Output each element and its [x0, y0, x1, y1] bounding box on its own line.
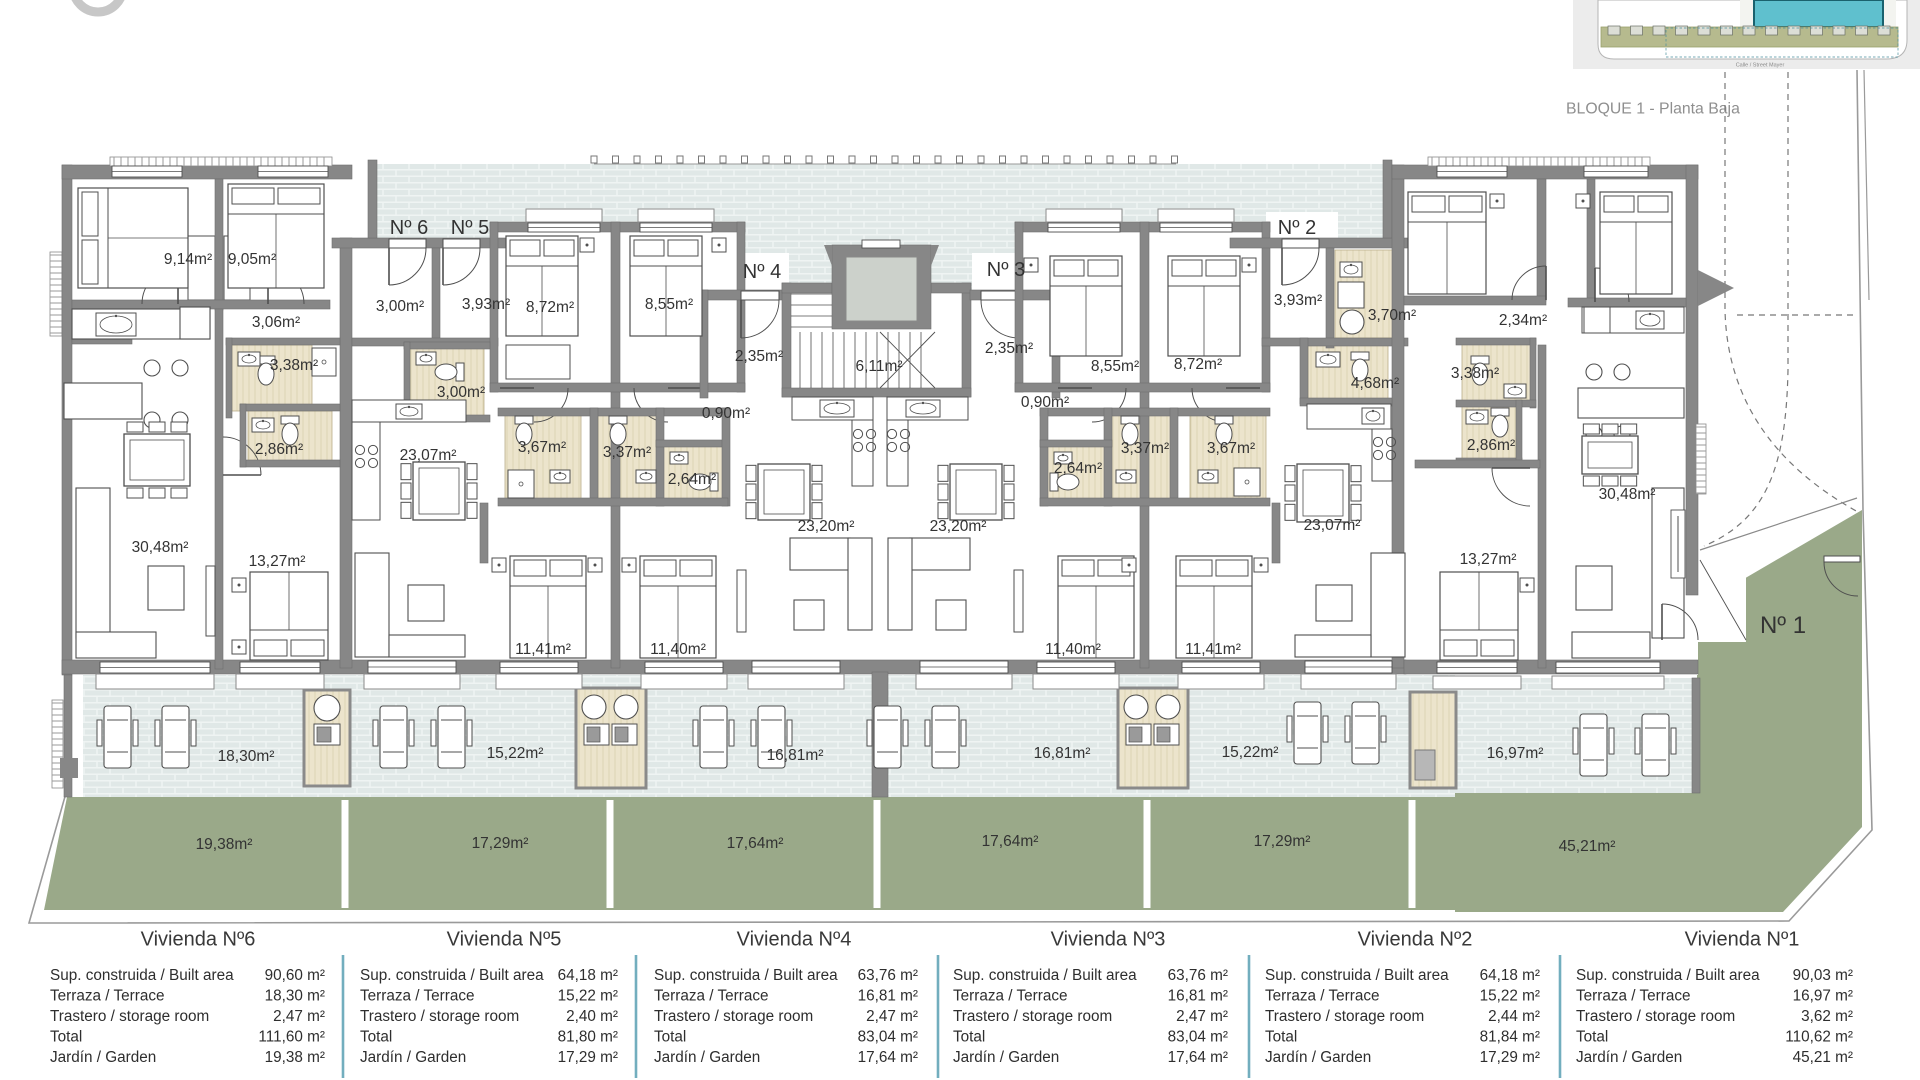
- svg-text:30,48m²: 30,48m²: [1599, 486, 1656, 503]
- svg-text:Total: Total: [654, 1029, 686, 1046]
- svg-text:Trastero / storage room: Trastero / storage room: [1265, 1008, 1424, 1025]
- svg-text:Total: Total: [953, 1029, 985, 1046]
- svg-text:Vivienda Nº5: Vivienda Nº5: [447, 929, 562, 951]
- svg-text:Terraza / Terrace: Terraza / Terrace: [50, 988, 165, 1005]
- svg-text:3,00m²: 3,00m²: [437, 384, 485, 401]
- svg-text:64,18 m²: 64,18 m²: [1480, 967, 1540, 984]
- svg-text:3,37m²: 3,37m²: [1121, 440, 1169, 457]
- svg-text:Terraza / Terrace: Terraza / Terrace: [654, 988, 769, 1005]
- svg-text:Sup. construida / Built area: Sup. construida / Built area: [50, 967, 234, 984]
- svg-text:83,04 m²: 83,04 m²: [858, 1029, 918, 1046]
- svg-text:BLOQUE 1 - Planta Baja: BLOQUE 1 - Planta Baja: [1566, 101, 1740, 118]
- svg-text:30,48m²: 30,48m²: [132, 539, 189, 556]
- svg-text:18,30 m²: 18,30 m²: [265, 988, 325, 1005]
- svg-text:Jardín / Garden: Jardín / Garden: [953, 1049, 1059, 1066]
- svg-text:Total: Total: [360, 1029, 392, 1046]
- svg-text:Trastero / storage room: Trastero / storage room: [360, 1008, 519, 1025]
- svg-text:111,60 m²: 111,60 m²: [258, 1029, 325, 1046]
- svg-text:63,76 m²: 63,76 m²: [1168, 967, 1228, 984]
- svg-text:4,68m²: 4,68m²: [1351, 375, 1399, 392]
- svg-text:11,40m²: 11,40m²: [650, 641, 706, 658]
- svg-text:Jardín / Garden: Jardín / Garden: [1576, 1049, 1682, 1066]
- svg-text:Nº 5: Nº 5: [451, 217, 489, 239]
- svg-text:19,38m²: 19,38m²: [196, 836, 253, 853]
- svg-text:2,86m²: 2,86m²: [255, 441, 303, 458]
- svg-text:90,03 m²: 90,03 m²: [1793, 967, 1853, 984]
- svg-text:110,62 m²: 110,62 m²: [1785, 1029, 1853, 1046]
- svg-text:Total: Total: [1576, 1029, 1608, 1046]
- svg-text:Calle / Street Mayer: Calle / Street Mayer: [1736, 63, 1785, 69]
- svg-text:45,21 m²: 45,21 m²: [1793, 1049, 1853, 1066]
- svg-text:3,62 m²: 3,62 m²: [1801, 1008, 1853, 1025]
- svg-text:Terraza / Terrace: Terraza / Terrace: [1265, 988, 1380, 1005]
- svg-text:3,70m²: 3,70m²: [1368, 307, 1416, 324]
- svg-text:64,18 m²: 64,18 m²: [558, 967, 618, 984]
- svg-text:Nº 6: Nº 6: [390, 217, 428, 239]
- svg-text:3,93m²: 3,93m²: [462, 296, 510, 313]
- svg-text:17,64 m²: 17,64 m²: [1168, 1049, 1228, 1066]
- svg-text:Jardín / Garden: Jardín / Garden: [360, 1049, 466, 1066]
- svg-text:23,07m²: 23,07m²: [1304, 517, 1361, 534]
- svg-text:17,64 m²: 17,64 m²: [858, 1049, 918, 1066]
- svg-text:Nº 1: Nº 1: [1760, 612, 1806, 639]
- svg-text:3,38m²: 3,38m²: [1451, 365, 1499, 382]
- svg-text:2,47 m²: 2,47 m²: [866, 1008, 918, 1025]
- svg-text:3,38m²: 3,38m²: [270, 357, 318, 374]
- svg-text:Terraza / Terrace: Terraza / Terrace: [1576, 988, 1691, 1005]
- svg-text:23,20m²: 23,20m²: [798, 518, 855, 535]
- svg-text:Vivienda Nº6: Vivienda Nº6: [141, 929, 256, 951]
- svg-text:13,27m²: 13,27m²: [1460, 551, 1517, 568]
- svg-text:Sup. construida / Built area: Sup. construida / Built area: [953, 967, 1137, 984]
- svg-text:2,47 m²: 2,47 m²: [1176, 1008, 1228, 1025]
- svg-text:17,29 m²: 17,29 m²: [558, 1049, 618, 1066]
- svg-text:16,81 m²: 16,81 m²: [858, 988, 918, 1005]
- svg-text:Terraza / Terrace: Terraza / Terrace: [360, 988, 475, 1005]
- svg-text:Nº 3: Nº 3: [987, 259, 1025, 281]
- svg-text:11,41m²: 11,41m²: [515, 641, 571, 658]
- svg-text:Total: Total: [1265, 1029, 1297, 1046]
- svg-text:3,00m²: 3,00m²: [376, 298, 424, 315]
- svg-text:18,30m²: 18,30m²: [218, 748, 275, 765]
- svg-text:8,55m²: 8,55m²: [645, 296, 693, 313]
- svg-text:6,11m²: 6,11m²: [855, 358, 902, 375]
- svg-text:16,81m²: 16,81m²: [767, 747, 824, 764]
- svg-text:19,38 m²: 19,38 m²: [265, 1049, 325, 1066]
- svg-text:9,05m²: 9,05m²: [228, 251, 276, 268]
- svg-text:81,84 m²: 81,84 m²: [1480, 1029, 1540, 1046]
- svg-text:17,29m²: 17,29m²: [472, 835, 529, 852]
- svg-text:81,80 m²: 81,80 m²: [558, 1029, 618, 1046]
- svg-text:3,67m²: 3,67m²: [1207, 440, 1255, 457]
- svg-text:Jardín / Garden: Jardín / Garden: [654, 1049, 760, 1066]
- svg-text:16,97m²: 16,97m²: [1487, 745, 1544, 762]
- svg-text:Terraza / Terrace: Terraza / Terrace: [953, 988, 1068, 1005]
- svg-text:17,29m²: 17,29m²: [1254, 833, 1311, 850]
- svg-text:Sup. construida / Built area: Sup. construida / Built area: [654, 967, 838, 984]
- svg-text:2,47 m²: 2,47 m²: [273, 1008, 325, 1025]
- svg-text:15,22 m²: 15,22 m²: [558, 988, 618, 1005]
- svg-text:23,07m²: 23,07m²: [400, 447, 457, 464]
- svg-text:0,90m²: 0,90m²: [1021, 394, 1069, 411]
- svg-text:17,64m²: 17,64m²: [727, 835, 784, 852]
- svg-text:16,97 m²: 16,97 m²: [1793, 988, 1853, 1005]
- svg-text:63,76 m²: 63,76 m²: [858, 967, 918, 984]
- svg-text:Sup. construida / Built area: Sup. construida / Built area: [360, 967, 544, 984]
- svg-text:16,81m²: 16,81m²: [1034, 745, 1091, 762]
- svg-text:Vivienda Nº2: Vivienda Nº2: [1358, 929, 1473, 951]
- svg-text:9,14m²: 9,14m²: [164, 251, 212, 268]
- svg-text:15,22 m²: 15,22 m²: [1480, 988, 1540, 1005]
- svg-text:45,21m²: 45,21m²: [1559, 838, 1616, 855]
- svg-text:2,35m²: 2,35m²: [985, 340, 1033, 357]
- svg-text:8,72m²: 8,72m²: [1174, 356, 1222, 373]
- svg-text:2,44 m²: 2,44 m²: [1488, 1008, 1540, 1025]
- svg-text:15,22m²: 15,22m²: [487, 745, 544, 762]
- svg-text:16,81 m²: 16,81 m²: [1168, 988, 1228, 1005]
- svg-text:Sup. construida / Built area: Sup. construida / Built area: [1265, 967, 1449, 984]
- svg-text:23,20m²: 23,20m²: [930, 518, 987, 535]
- svg-text:Jardín / Garden: Jardín / Garden: [1265, 1049, 1371, 1066]
- svg-text:3,06m²: 3,06m²: [252, 314, 300, 331]
- svg-text:3,67m²: 3,67m²: [518, 439, 566, 456]
- svg-text:11,40m²: 11,40m²: [1045, 641, 1101, 658]
- svg-text:2,35m²: 2,35m²: [735, 348, 783, 365]
- svg-text:Trastero / storage room: Trastero / storage room: [1576, 1008, 1735, 1025]
- svg-text:Vivienda Nº4: Vivienda Nº4: [737, 929, 852, 951]
- svg-text:17,29 m²: 17,29 m²: [1480, 1049, 1540, 1066]
- svg-text:Trastero / storage room: Trastero / storage room: [654, 1008, 813, 1025]
- svg-text:Jardín / Garden: Jardín / Garden: [50, 1049, 156, 1066]
- svg-text:2,40 m²: 2,40 m²: [566, 1008, 618, 1025]
- svg-text:3,93m²: 3,93m²: [1274, 292, 1322, 309]
- svg-text:90,60 m²: 90,60 m²: [265, 967, 325, 984]
- svg-text:2,34m²: 2,34m²: [1499, 312, 1547, 329]
- svg-text:Sup. construida / Built area: Sup. construida / Built area: [1576, 967, 1760, 984]
- svg-text:2,86m²: 2,86m²: [1467, 437, 1515, 454]
- svg-text:3,37m²: 3,37m²: [603, 444, 651, 461]
- svg-text:15,22m²: 15,22m²: [1222, 744, 1279, 761]
- svg-text:2,64m²: 2,64m²: [668, 471, 716, 488]
- svg-text:Trastero / storage room: Trastero / storage room: [50, 1008, 209, 1025]
- svg-text:17,64m²: 17,64m²: [982, 833, 1039, 850]
- svg-text:11,41m²: 11,41m²: [1185, 641, 1241, 658]
- svg-text:0,90m²: 0,90m²: [702, 405, 750, 422]
- svg-text:Trastero / storage room: Trastero / storage room: [953, 1008, 1112, 1025]
- svg-text:13,27m²: 13,27m²: [249, 553, 306, 570]
- svg-text:Vivienda Nº1: Vivienda Nº1: [1685, 929, 1800, 951]
- svg-text:8,55m²: 8,55m²: [1091, 358, 1139, 375]
- svg-text:Total: Total: [50, 1029, 82, 1046]
- svg-text:2,64m²: 2,64m²: [1054, 460, 1102, 477]
- svg-text:8,72m²: 8,72m²: [526, 299, 574, 316]
- svg-text:Nº 2: Nº 2: [1278, 217, 1316, 239]
- svg-text:Nº 4: Nº 4: [743, 261, 781, 283]
- svg-text:83,04 m²: 83,04 m²: [1168, 1029, 1228, 1046]
- svg-text:Vivienda Nº3: Vivienda Nº3: [1051, 929, 1166, 951]
